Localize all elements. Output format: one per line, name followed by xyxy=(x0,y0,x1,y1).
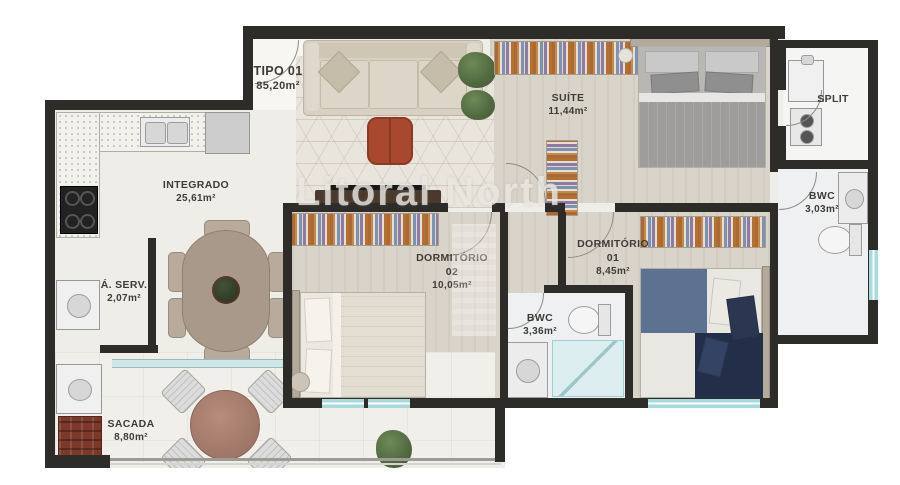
wall-segment xyxy=(770,39,778,172)
pillow xyxy=(645,51,699,73)
room-area: 25,61m² xyxy=(176,192,216,205)
bwc-suite-toilet xyxy=(818,226,852,254)
red-pouf xyxy=(367,117,413,165)
exterior xyxy=(878,0,900,485)
window xyxy=(869,250,878,300)
room-label-split: SPLIT xyxy=(806,92,860,108)
wall-segment xyxy=(778,48,786,90)
room-name: SPLIT xyxy=(817,93,849,107)
room-name: Á. SERV. xyxy=(101,279,148,293)
blanket xyxy=(341,293,425,397)
stove xyxy=(60,186,98,234)
bwc-social-toilet-tank xyxy=(598,304,611,336)
room-label-servico: Á. SERV. 2,07m² xyxy=(86,276,162,308)
wall-segment xyxy=(495,398,505,462)
wall-segment xyxy=(45,100,55,468)
exterior xyxy=(0,26,45,485)
room-label-bwc-social: BWC 3,36m² xyxy=(508,308,572,342)
window xyxy=(648,399,760,408)
exterior xyxy=(0,468,900,485)
room-label-suite: SUÍTE 11,44m² xyxy=(522,88,614,122)
laundry-tub xyxy=(56,364,102,414)
sheet-fold xyxy=(333,293,341,397)
balcony-railing xyxy=(55,463,501,465)
sliding-door xyxy=(112,359,284,368)
pillow xyxy=(304,297,332,342)
dorm02-stool xyxy=(290,372,310,392)
room-label-dorm01: DORMITÓRIO 01 8,45m² xyxy=(566,234,660,282)
exterior xyxy=(778,344,878,468)
room-label-integrado: INTEGRADO 25,61m² xyxy=(148,176,244,208)
balcony-railing xyxy=(55,458,501,461)
wall-segment xyxy=(778,126,786,160)
exterior xyxy=(505,408,778,468)
dorm01-bed-headboard xyxy=(762,266,770,400)
room-area: 11,44m² xyxy=(548,105,587,118)
pillow xyxy=(704,71,753,94)
wall-segment xyxy=(243,26,785,39)
wall-segment xyxy=(558,212,566,290)
watermark-text: Litoral North xyxy=(296,170,562,215)
room-area: 3,03m² xyxy=(805,203,839,216)
room-name: DORMITÓRIO xyxy=(577,238,649,252)
wall-segment xyxy=(775,335,878,344)
room-name: SACADA xyxy=(107,418,154,432)
bwc-social-toilet xyxy=(568,306,600,334)
sofa xyxy=(303,40,483,116)
wall-segment xyxy=(775,160,878,169)
room-area: 8,45m² xyxy=(596,265,630,278)
wall-segment xyxy=(500,212,508,398)
sink-basin xyxy=(516,359,540,383)
room-area: 3,36m² xyxy=(523,325,557,338)
balcony-table xyxy=(190,390,260,460)
room-label-bwc-suite: BWC 3,03m² xyxy=(790,186,854,220)
sofa-cushion xyxy=(369,60,418,109)
room-number: 01 xyxy=(607,252,619,266)
room-area: 2,07m² xyxy=(107,292,141,305)
room-name: BWC xyxy=(527,312,553,326)
bwc-social-sink xyxy=(506,342,548,398)
window xyxy=(322,399,364,408)
dorm02-bed xyxy=(300,292,426,398)
dorm01-bed xyxy=(640,268,762,398)
room-name: INTEGRADO xyxy=(163,179,229,193)
blanket xyxy=(639,102,765,167)
sink-basin xyxy=(167,122,188,144)
meter-dial xyxy=(800,130,814,144)
tub-basin xyxy=(68,379,92,401)
suite-nightstand xyxy=(618,48,633,63)
unit-area: 85,20m² xyxy=(256,79,299,93)
plant xyxy=(458,52,496,88)
unit-label: TIPO 01 85,20m² xyxy=(233,60,323,96)
fridge xyxy=(205,112,250,154)
wall-segment xyxy=(625,293,633,408)
wall-segment xyxy=(775,40,878,48)
dorm02-wardrobe xyxy=(291,213,439,246)
suite-bed xyxy=(638,46,766,168)
bwc-suite-toilet-tank xyxy=(849,224,862,256)
wall-segment xyxy=(615,203,778,212)
pillow xyxy=(650,71,699,94)
room-label-sacada: SACADA 8,80m² xyxy=(92,414,170,448)
watermark-logo xyxy=(452,224,496,336)
wall-segment xyxy=(283,203,292,408)
room-name: SUÍTE xyxy=(552,92,585,106)
unit-name: TIPO 01 xyxy=(254,63,303,79)
wall-segment xyxy=(770,210,778,408)
room-name: BWC xyxy=(809,190,835,204)
room-area: 8,80m² xyxy=(114,431,148,444)
bwc-social-shower xyxy=(552,340,624,397)
kitchen-sink xyxy=(140,117,190,147)
window xyxy=(368,399,410,408)
sink-basin xyxy=(145,122,166,144)
heater-valve xyxy=(801,55,814,65)
floor-plan: TIPO 01 85,20m² SUÍTE 11,44m² SPLIT BWC … xyxy=(0,0,900,485)
exterior xyxy=(785,0,878,40)
sheet-fold xyxy=(639,93,765,102)
table-centerpiece xyxy=(212,276,240,304)
wall-segment xyxy=(45,100,253,110)
pillow xyxy=(726,295,760,340)
exterior xyxy=(0,0,900,26)
plant xyxy=(461,90,495,120)
pillow xyxy=(705,51,759,73)
